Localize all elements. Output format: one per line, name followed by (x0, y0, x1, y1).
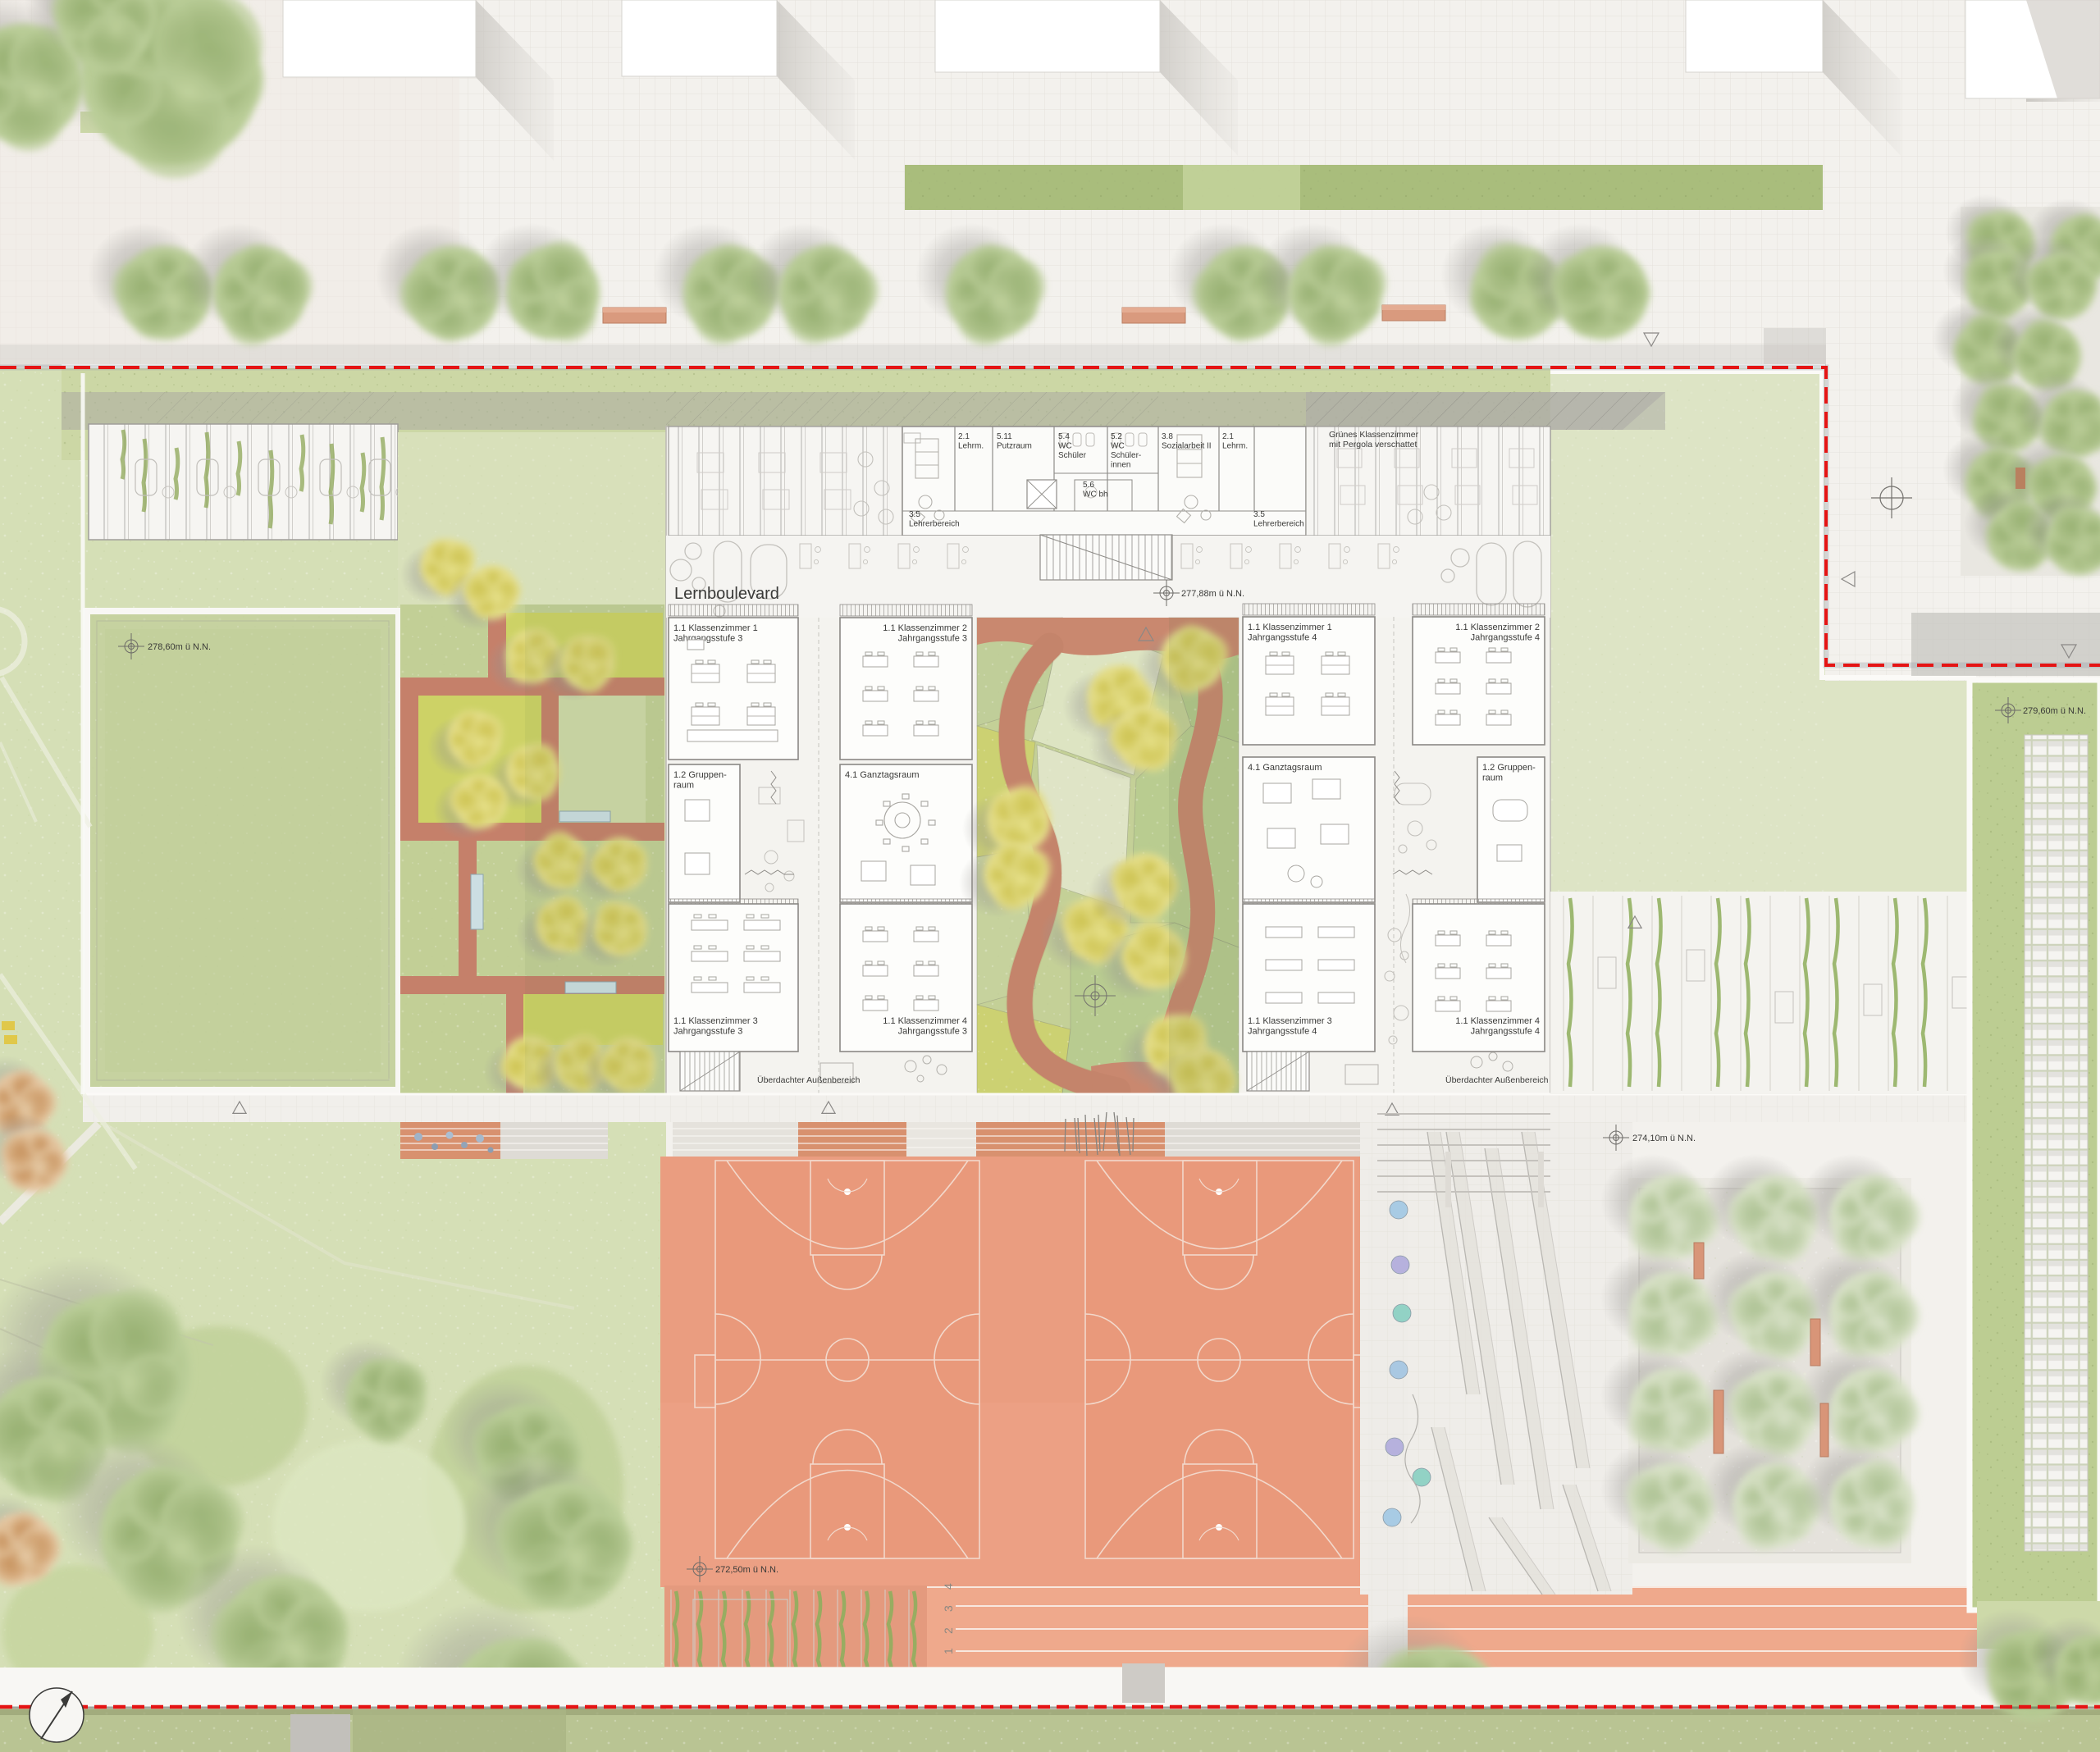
svg-text:Grünes Klassenzimmermit Pergol: Grünes Klassenzimmermit Pergola verschat… (1329, 430, 1419, 449)
svg-text:4: 4 (942, 1583, 955, 1590)
svg-text:277,88m ü N.N.: 277,88m ü N.N. (1181, 589, 1244, 599)
svg-text:Überdachter Außenbereich: Überdachter Außenbereich (1445, 1075, 1549, 1085)
svg-text:274,10m ü N.N.: 274,10m ü N.N. (1632, 1134, 1696, 1143)
svg-text:3: 3 (942, 1605, 955, 1612)
svg-text:Überdachter Außenbereich: Überdachter Außenbereich (757, 1075, 861, 1085)
svg-text:Lernboulevard: Lernboulevard (674, 585, 779, 603)
svg-text:4.1 Ganztagsraum: 4.1 Ganztagsraum (1248, 763, 1322, 773)
svg-text:2: 2 (942, 1627, 955, 1634)
svg-text:4.1 Ganztagsraum: 4.1 Ganztagsraum (845, 770, 920, 780)
svg-text:272,50m ü N.N.: 272,50m ü N.N. (715, 1565, 778, 1575)
svg-text:1: 1 (942, 1648, 955, 1654)
svg-text:279,60m ü N.N.: 279,60m ü N.N. (2023, 706, 2086, 716)
svg-text:278,60m ü N.N.: 278,60m ü N.N. (148, 642, 211, 652)
